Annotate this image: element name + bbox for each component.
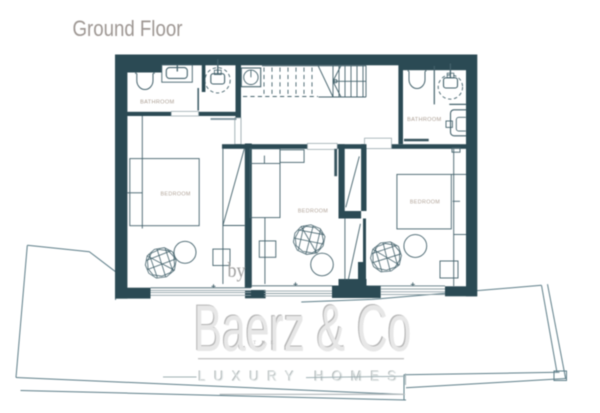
svg-text:Ground Floor: Ground Floor — [73, 16, 183, 41]
svg-text:BEDROOM: BEDROOM — [298, 208, 328, 214]
svg-text:BATHROOM: BATHROOM — [140, 100, 174, 106]
svg-text:LUXURY HOMES: LUXURY HOMES — [198, 368, 405, 385]
svg-text:by: by — [228, 259, 246, 283]
svg-text:BEDROOM: BEDROOM — [160, 192, 190, 198]
svg-text:BATHROOM: BATHROOM — [407, 117, 441, 123]
svg-text:Baerz & Co: Baerz & Co — [194, 291, 412, 365]
svg-text:BEDROOM: BEDROOM — [410, 200, 440, 206]
svg-text:THE: THE — [253, 341, 279, 346]
